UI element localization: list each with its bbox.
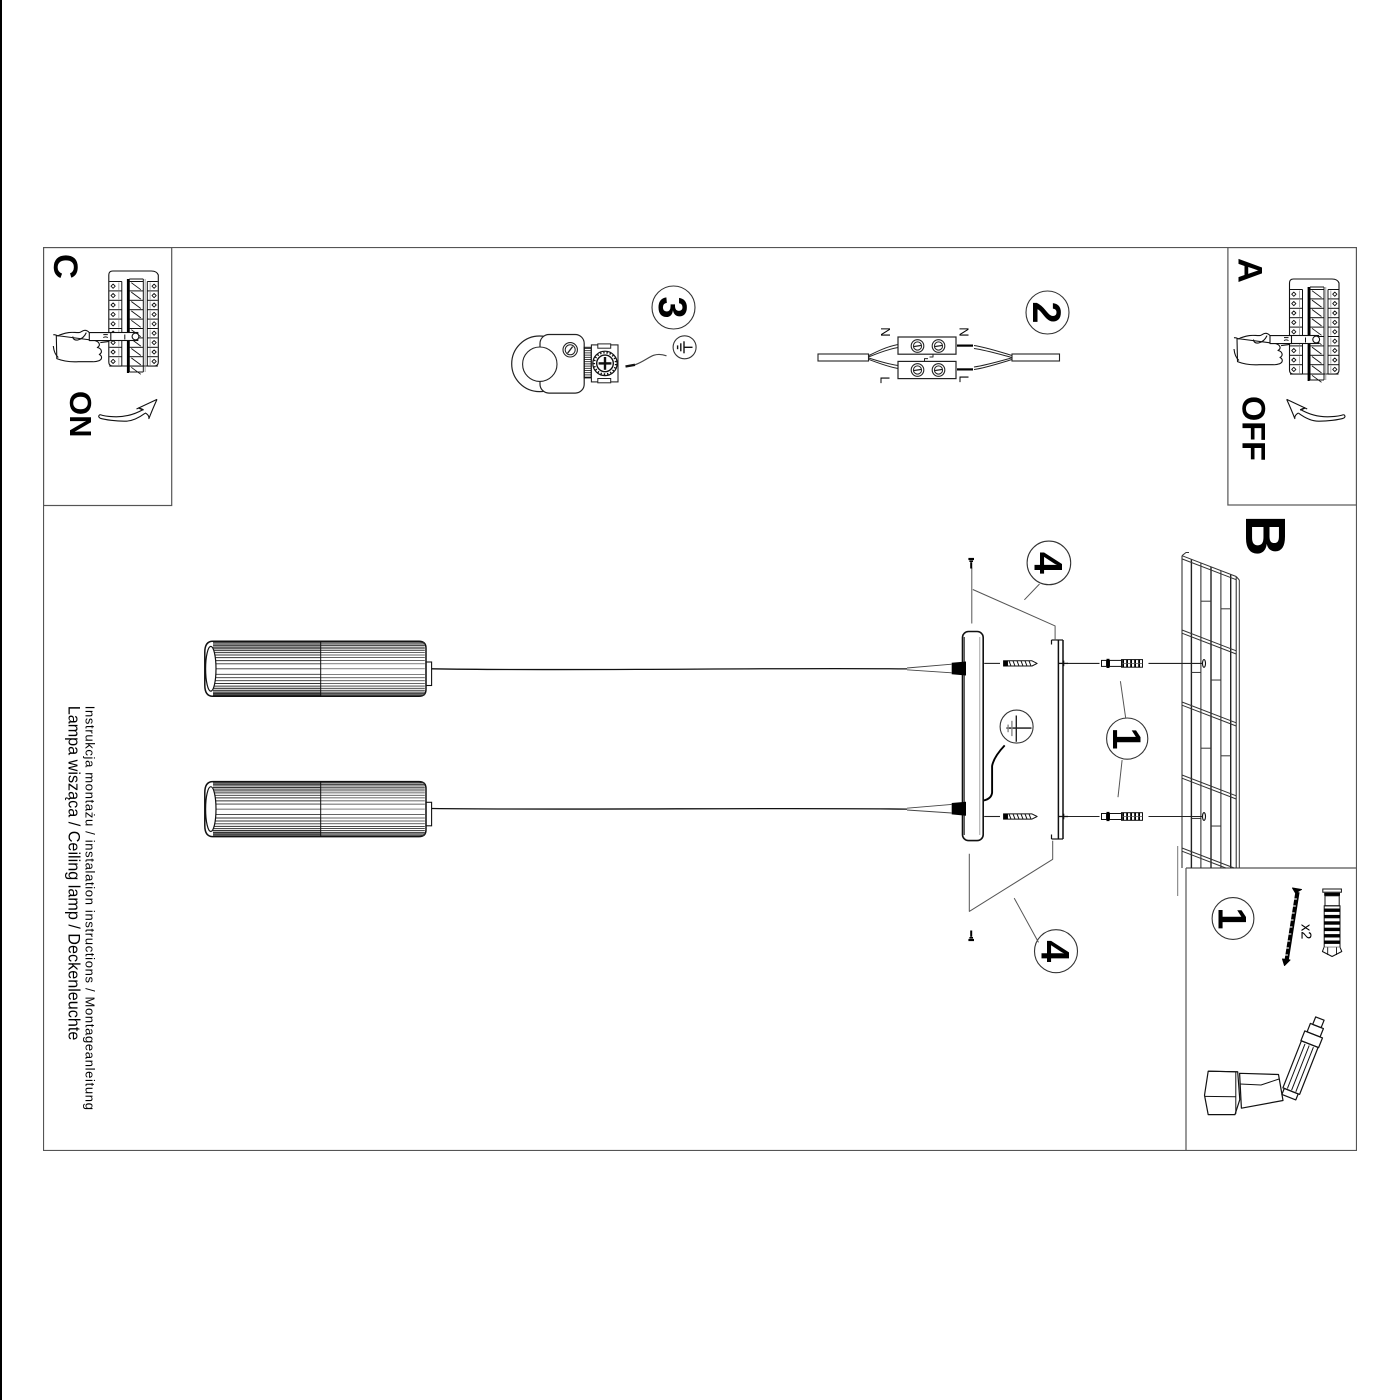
svg-text:1: 1 (1104, 728, 1148, 750)
svg-text:L: L (957, 375, 972, 382)
svg-text:OFF: OFF (1236, 396, 1272, 461)
svg-text:Lampa wisząca / Ceiling lamp /: Lampa wisząca / Ceiling lamp / Deckenleu… (65, 706, 83, 1041)
svg-text:4: 4 (1033, 940, 1077, 962)
svg-text:2: 2 (1024, 302, 1068, 324)
svg-text:N: N (957, 327, 972, 336)
svg-text:A: A (1231, 258, 1269, 283)
svg-text:B: B (1233, 515, 1297, 556)
svg-text:ON: ON (63, 391, 98, 438)
svg-text:Instrukcja montażu / instalati: Instrukcja montażu / instalation instruc… (83, 706, 98, 1111)
svg-text:1: 1 (1210, 908, 1254, 930)
svg-text:C: C (46, 254, 84, 279)
svg-text:3: 3 (650, 297, 694, 319)
svg-text:4: 4 (1026, 552, 1070, 574)
svg-text:N: N (878, 327, 893, 336)
svg-text:x2: x2 (1298, 924, 1314, 939)
svg-text:L: L (878, 376, 893, 383)
